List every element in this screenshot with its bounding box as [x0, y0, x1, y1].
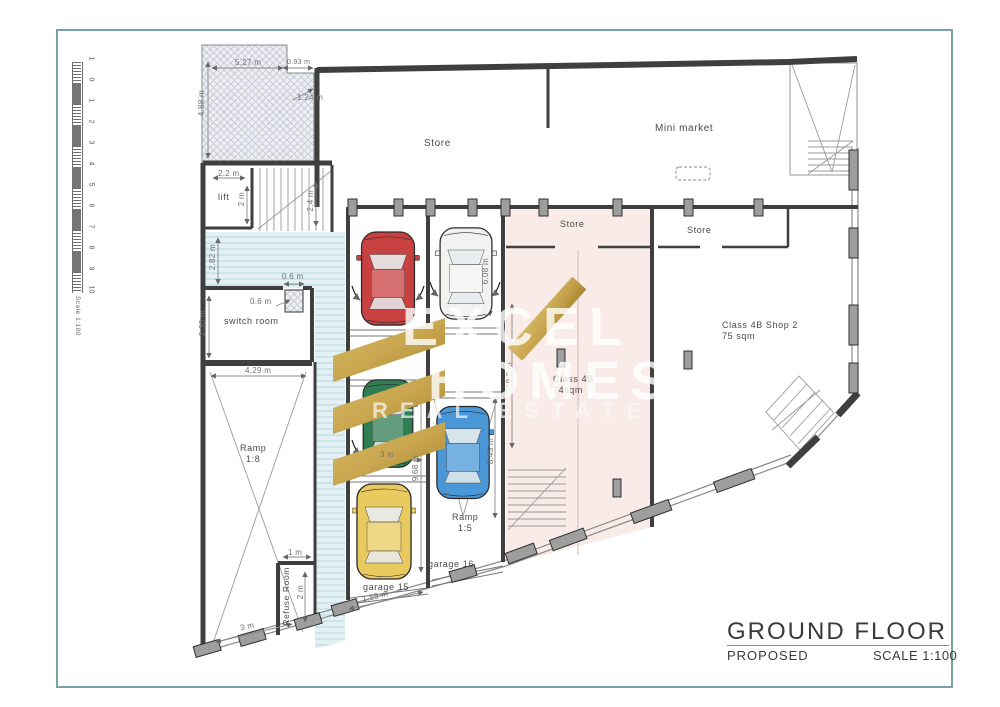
- dim-0-93: 0.93 m: [287, 59, 310, 66]
- ramp18-diagonals: [210, 372, 306, 646]
- dim-1: 1 m: [288, 548, 302, 557]
- sheet: 1 0 1 2 3 4 5 6 7 8 9 10 Scale 1:100: [0, 0, 1000, 707]
- dim-2: 2 m: [237, 192, 246, 206]
- room-label-lift: lift: [218, 192, 229, 202]
- diamond-stairs: [766, 376, 834, 450]
- dim-2-b: 2 m: [296, 585, 305, 599]
- drawing-status: PROPOSED: [727, 648, 809, 663]
- car-red: [357, 232, 420, 325]
- room-label-ramp18-line1: Ramp: [240, 443, 266, 454]
- room-label-shop2-line1: Class 4B Shop 2: [722, 320, 798, 331]
- car-yellow: [352, 484, 416, 579]
- room-label-shop2-line2: 75 sqm: [722, 331, 798, 342]
- room-label-refuse-room: Refuse Room: [281, 567, 291, 626]
- dim-5-27: 5.27 m: [235, 58, 261, 67]
- car-blue: [432, 407, 494, 499]
- cart-symbol: [676, 167, 710, 180]
- dim-8-45: 8.45 m: [486, 438, 495, 464]
- dim-9-68: 9.68 m: [411, 455, 420, 481]
- dim-2-82: 2.82 m: [208, 244, 217, 270]
- room-label-ramp15-line2: 1:5: [452, 523, 478, 534]
- room-label-ramp15-line1: Ramp: [452, 512, 478, 523]
- room-label-store-right: Store: [687, 225, 712, 235]
- dim-0-6-b: 0.6 m: [250, 297, 272, 306]
- room-label-store-main: Store: [424, 138, 451, 149]
- dim-1-24: 1.24 m: [297, 93, 323, 102]
- room-label-garage16: garage 16: [428, 559, 474, 569]
- room-label-mini-market: Mini market: [655, 123, 713, 134]
- dim-2-2: 2.2 m: [218, 169, 240, 178]
- dim-2-30: 2.30 m: [198, 310, 207, 336]
- dim-3-a: 3 m: [380, 450, 394, 459]
- title-underline: [727, 645, 949, 646]
- dim-2-4: 2.4 m: [306, 190, 315, 212]
- driveway-hatch-upper: [206, 232, 345, 288]
- room-label-switch-room: switch room: [224, 316, 279, 326]
- floor-plan-drawing: [0, 0, 1000, 707]
- room-label-class4b-line1: Class 4B: [553, 374, 594, 385]
- dim-4-29: 4.29 m: [245, 366, 271, 375]
- drawing-title: GROUND FLOOR: [727, 618, 947, 646]
- stair-v-lines: [792, 65, 855, 172]
- dim-4-88: 4.88 m: [197, 90, 206, 116]
- drawing-scale: SCALE 1:100: [873, 648, 957, 663]
- dim-6-08: 6.08 m: [481, 258, 490, 284]
- dim-0-6-a: 0.6 m: [282, 272, 304, 281]
- room-label-store-left: Store: [560, 219, 585, 229]
- dim-9-2: 9.2 m: [505, 362, 514, 384]
- room-label-class4b-line2: 74sqm: [553, 385, 594, 396]
- room-label-ramp18-line2: 1:8: [240, 454, 266, 465]
